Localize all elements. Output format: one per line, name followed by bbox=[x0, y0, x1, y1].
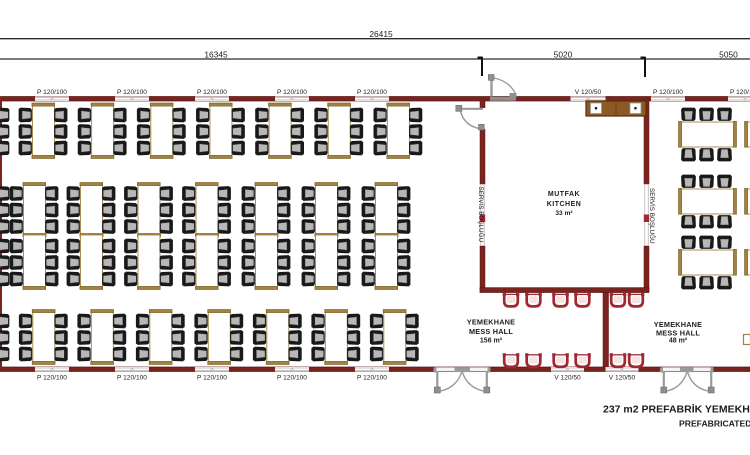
svg-text:MESS HALL: MESS HALL bbox=[469, 327, 513, 336]
svg-text:V 120/50: V 120/50 bbox=[554, 375, 581, 382]
svg-text:V 120/50: V 120/50 bbox=[609, 375, 636, 382]
svg-text:V 120/50: V 120/50 bbox=[575, 89, 602, 96]
svg-text:33 m²: 33 m² bbox=[555, 210, 573, 217]
svg-text:SERVİS BOŞLUĞU: SERVİS BOŞLUĞU bbox=[648, 188, 657, 244]
svg-text:MESS HALL: MESS HALL bbox=[656, 328, 700, 337]
svg-text:P 120/100: P 120/100 bbox=[37, 89, 67, 96]
svg-text:16345: 16345 bbox=[204, 49, 228, 59]
svg-text:P 120/100: P 120/100 bbox=[197, 89, 227, 96]
svg-text:SERVİS BOŞLUĞU: SERVİS BOŞLUĞU bbox=[477, 187, 486, 243]
svg-text:P 120/100: P 120/100 bbox=[117, 89, 147, 96]
svg-text:P 120/100: P 120/100 bbox=[653, 89, 683, 96]
svg-text:P 120/100: P 120/100 bbox=[37, 375, 67, 382]
svg-text:P 120/100: P 120/100 bbox=[197, 375, 227, 382]
svg-text:MUTFAK: MUTFAK bbox=[548, 191, 580, 198]
svg-text:YEMEKHANE: YEMEKHANE bbox=[467, 318, 515, 327]
svg-text:156 m²: 156 m² bbox=[480, 338, 503, 345]
svg-text:5020: 5020 bbox=[554, 49, 573, 59]
svg-text:237 m2 PREFABRİK YEMEKHANE: 237 m2 PREFABRİK YEMEKHANE bbox=[603, 403, 750, 416]
svg-text:P 120/100: P 120/100 bbox=[117, 375, 147, 382]
svg-text:48 m²: 48 m² bbox=[669, 338, 688, 345]
svg-text:PREFABRICATED MESS HALL: PREFABRICATED MESS HALL bbox=[679, 419, 750, 429]
svg-text:P 120/100: P 120/100 bbox=[730, 89, 750, 96]
svg-text:P 120/100: P 120/100 bbox=[277, 89, 307, 96]
svg-text:P 120/100: P 120/100 bbox=[357, 89, 387, 96]
svg-text:5050: 5050 bbox=[719, 49, 738, 59]
svg-text:P 120/100: P 120/100 bbox=[277, 375, 307, 382]
svg-text:26415: 26415 bbox=[369, 29, 393, 39]
svg-text:KITCHEN: KITCHEN bbox=[547, 201, 582, 208]
svg-text:P 120/100: P 120/100 bbox=[357, 375, 387, 382]
